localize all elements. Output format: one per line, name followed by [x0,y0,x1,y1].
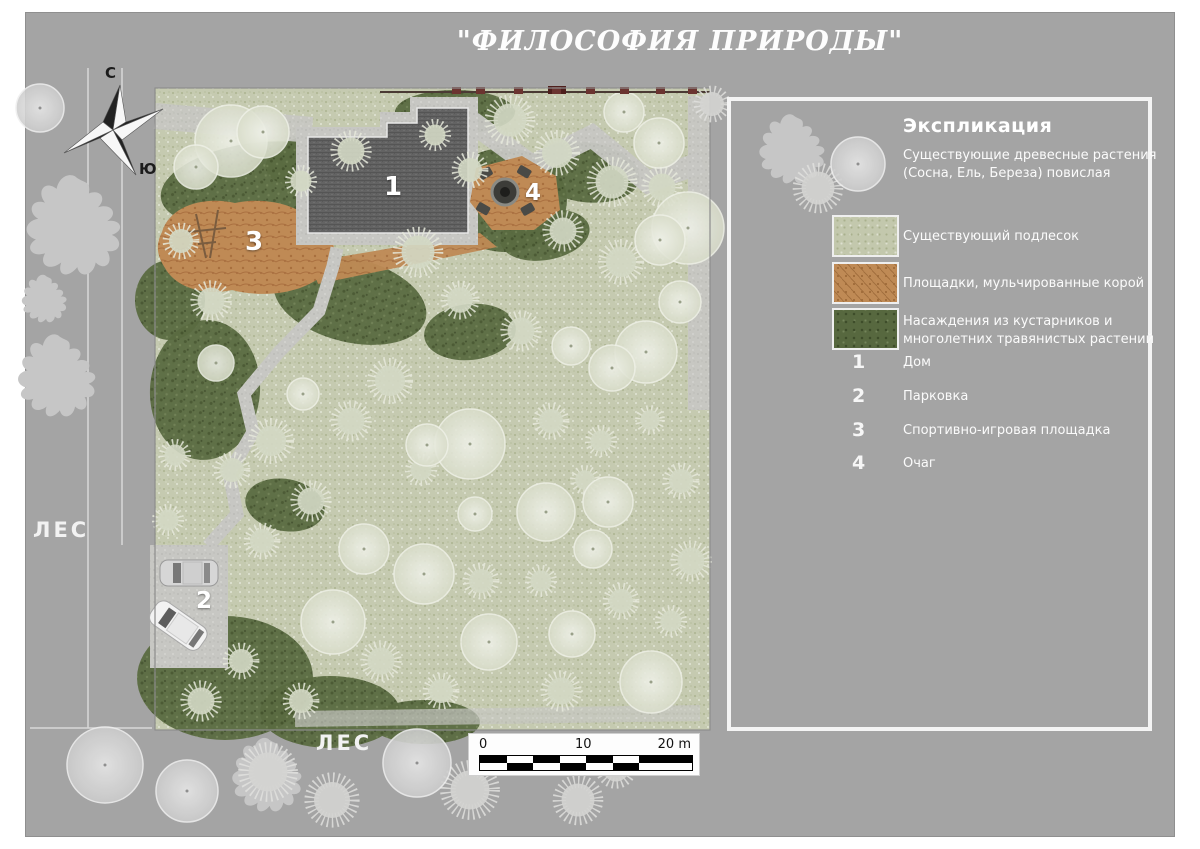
branchy-tree-symbol [22,275,67,323]
site-plan-drawing [0,0,1200,849]
parking-area [146,545,228,668]
car-silver [160,560,218,586]
drawing-page: "ФИЛОСОФИЯ ПРИРОДЫ" С Ю ЛЕС ЛЕС 1234 Экс… [0,0,1200,849]
compass-rose [64,85,163,175]
branchy-tree-symbol [18,334,95,416]
branchy-tree-symbol [27,175,121,274]
